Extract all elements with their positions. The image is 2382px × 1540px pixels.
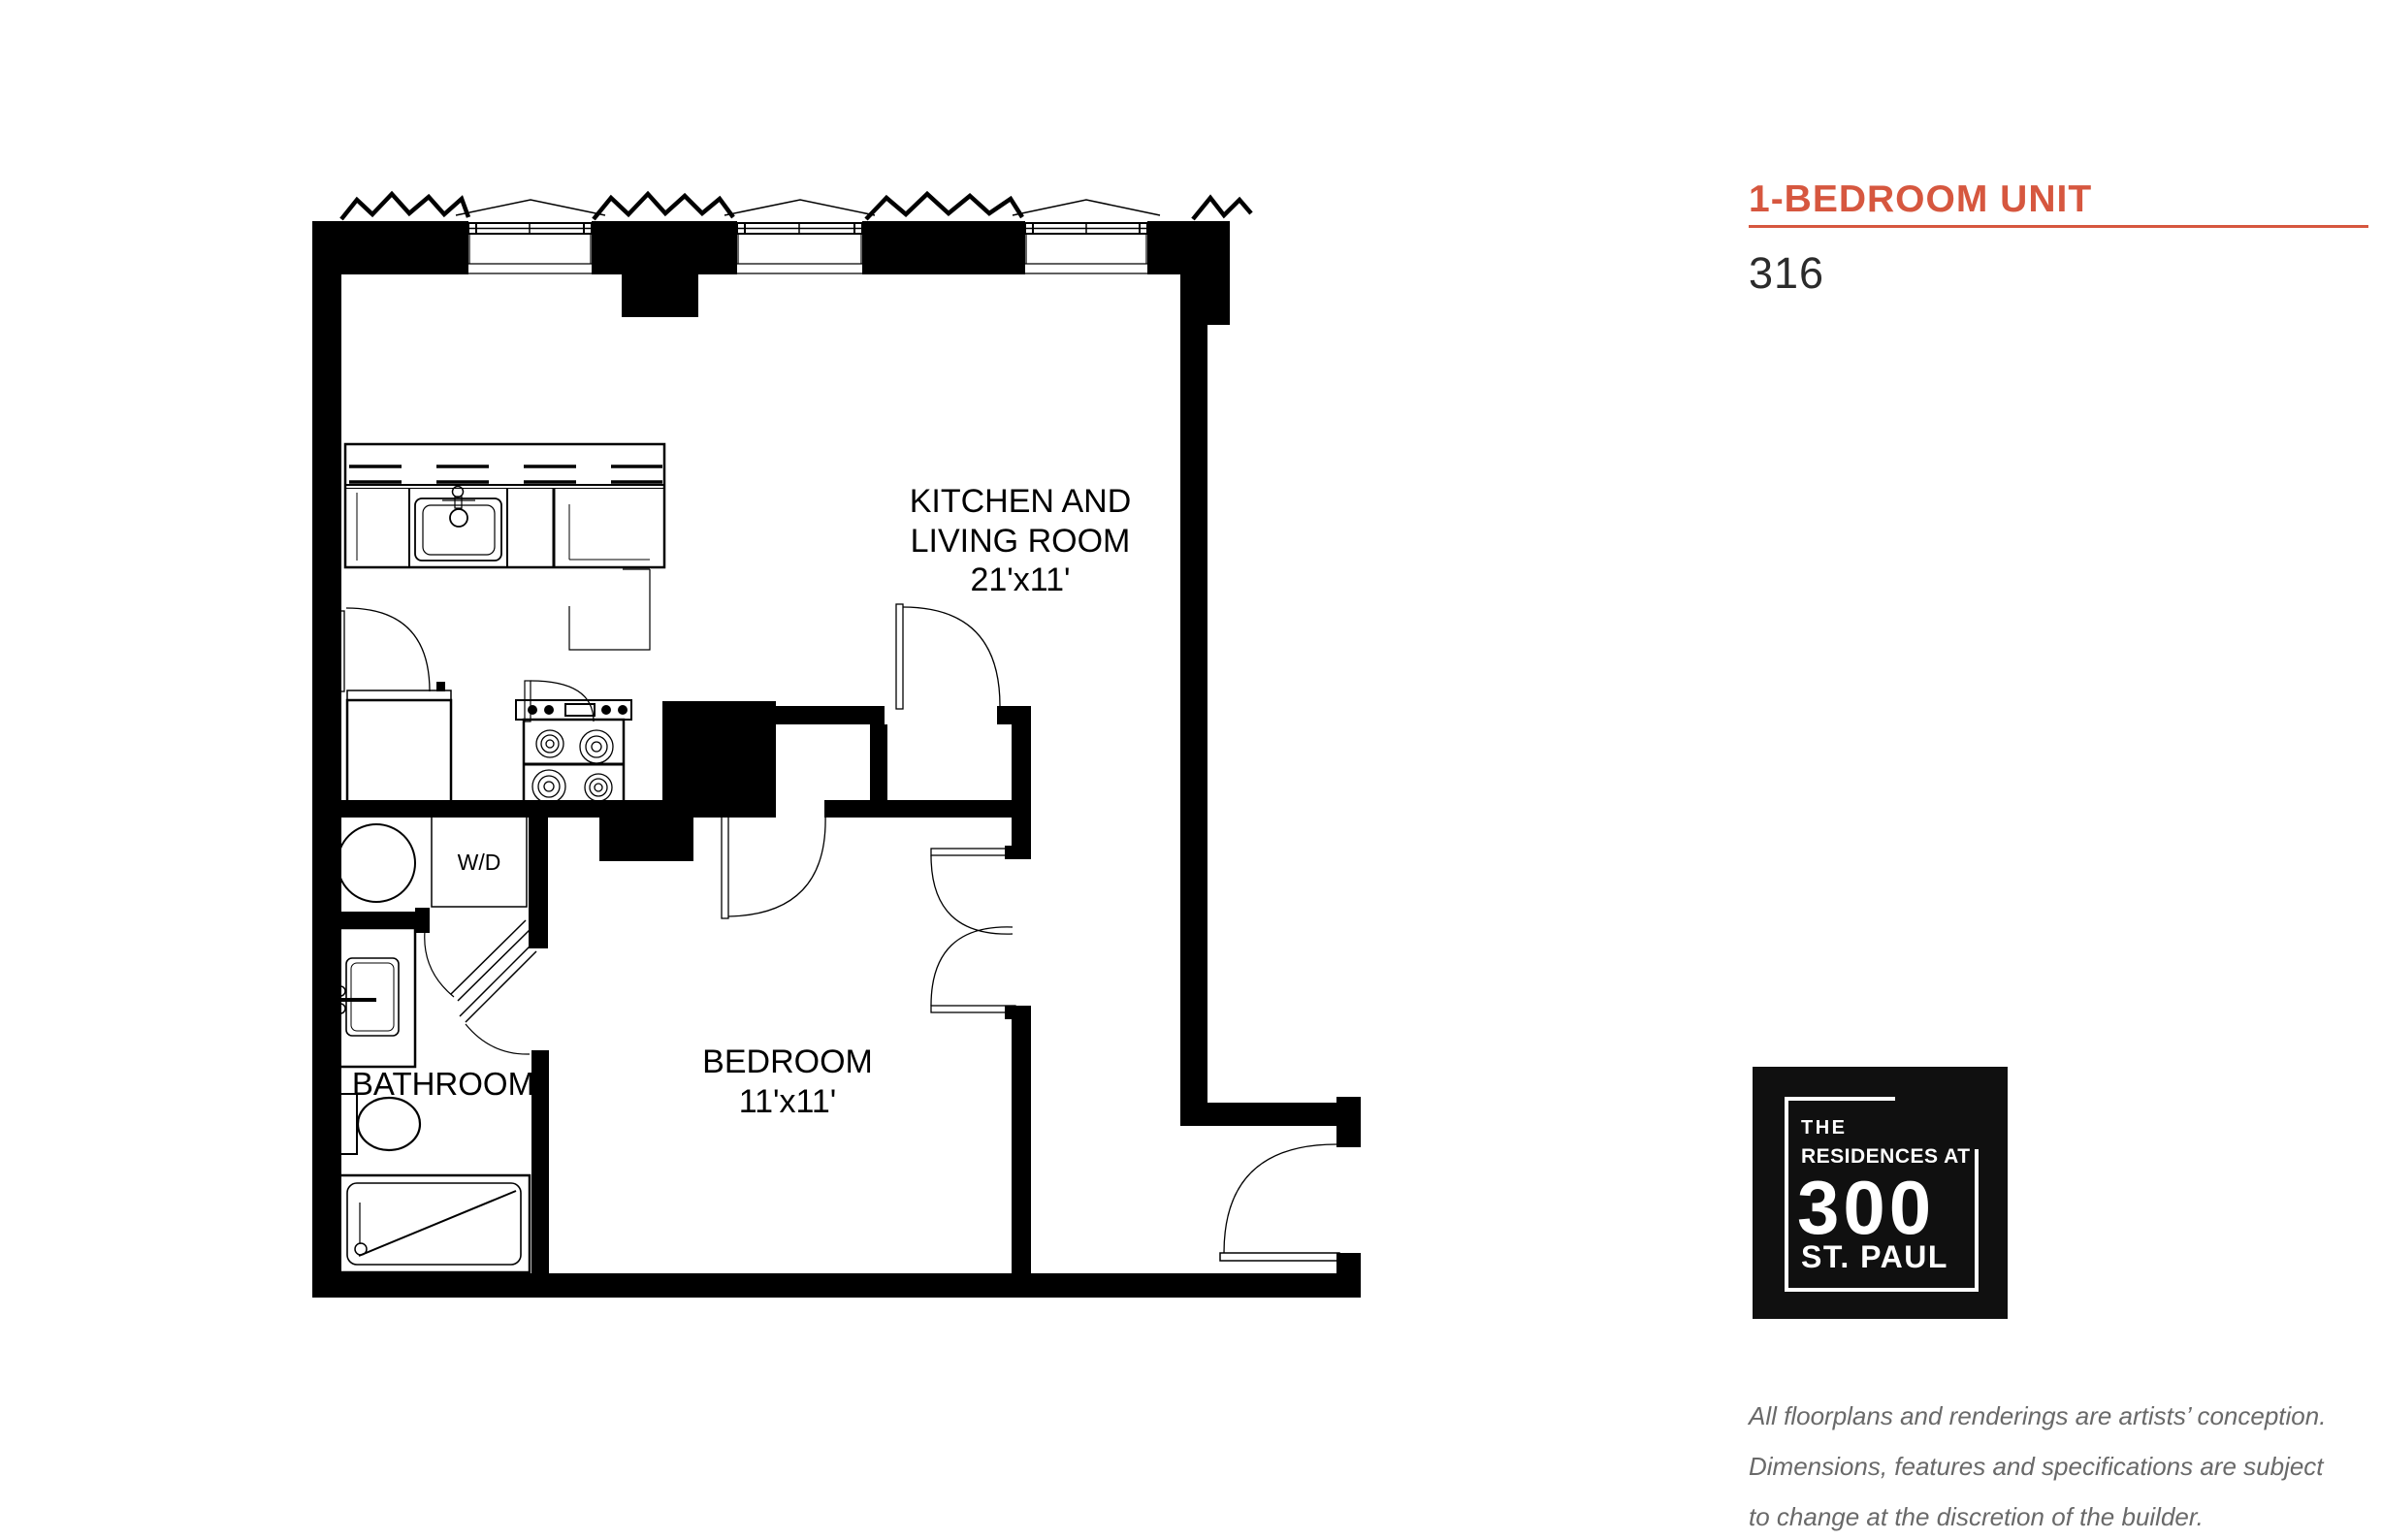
kitchen-door-icon <box>338 608 430 691</box>
logo-line-the: THE <box>1801 1117 1848 1139</box>
wall-kitchen-south-right <box>824 800 1031 818</box>
wall-right <box>1180 274 1207 1126</box>
bedroom-door-icon <box>722 815 825 918</box>
zigzag-1 <box>341 194 468 219</box>
exterior-break-lines <box>341 194 1251 219</box>
wall-hall-upper <box>1012 706 1031 853</box>
window-3-icon <box>1025 223 1147 273</box>
logo-frame-top <box>1785 1097 1895 1101</box>
entry-jamb-top <box>1336 1097 1361 1147</box>
kitchen <box>345 444 664 813</box>
wall-left <box>312 221 341 1298</box>
bedroom-closet-doors-icon <box>931 849 1015 1012</box>
shower-icon <box>338 1175 530 1272</box>
bay-peak-1 <box>456 200 605 215</box>
logo-frame-bottom <box>1785 1288 1979 1292</box>
column <box>622 262 698 317</box>
zigzag-4 <box>1193 198 1251 219</box>
toilet-icon <box>335 1094 420 1154</box>
logo-frame-left <box>1785 1097 1788 1292</box>
closet-door-jamb-1 <box>1005 846 1031 859</box>
title-underline <box>1749 225 2368 228</box>
bay-peak-2 <box>724 200 875 215</box>
bay-peak-3 <box>1013 200 1160 215</box>
zigzag-2 <box>594 194 733 219</box>
window-2-icon <box>737 223 862 273</box>
wall-hall-lower <box>1012 1009 1031 1278</box>
page: KITCHEN AND LIVING ROOM 21'x11' BEDROOM … <box>0 0 2382 1540</box>
kitchen-living-dimensions: 21'x11' <box>970 561 1070 598</box>
wall-entry-jut <box>1180 1103 1361 1126</box>
unit-number: 316 <box>1749 248 1824 299</box>
wall-mass-a <box>662 701 776 818</box>
bedroom-dimensions: 11'x11' <box>739 1083 837 1120</box>
wall-closet-north-left <box>776 706 885 724</box>
wall-closet-west <box>870 724 887 800</box>
window-1-icon <box>468 223 592 273</box>
bedroom-label: BEDROOM <box>702 1043 873 1080</box>
disclaimer-text: All floorplans and renderings are artist… <box>1749 1391 2369 1540</box>
page-title: 1-BEDROOM UNIT <box>1749 178 2092 221</box>
wall-mass-b <box>599 818 693 861</box>
zigzag-3 <box>866 194 1022 219</box>
logo-frame-right <box>1975 1149 1979 1292</box>
bathroom-label: BATHROOM <box>352 1066 534 1102</box>
closet-door-icon <box>896 604 1000 709</box>
burners <box>532 730 613 803</box>
kitchen-counter <box>345 444 664 567</box>
stove-icon <box>516 700 631 813</box>
kitchen-living-label-line2: LIVING ROOM <box>911 523 1131 560</box>
disclaimer-line-3: to change at the discretion of the build… <box>1749 1492 2369 1540</box>
bathroom-doors-icon <box>425 920 536 1054</box>
wall-bottom <box>312 1273 1361 1298</box>
water-heater-icon <box>338 824 415 902</box>
refrigerator-icon <box>347 682 451 813</box>
kitchen-living-label-line1: KITCHEN AND <box>910 483 1132 520</box>
walls <box>312 221 1361 1298</box>
vanity-icon <box>335 928 415 1067</box>
brand-logo: THE RESIDENCES AT 300 ST. PAUL <box>1753 1067 2008 1319</box>
kitchen-sink-icon <box>415 487 501 561</box>
wall-top-pier-4 <box>1147 221 1230 274</box>
washer-dryer-label: W/D <box>458 850 501 875</box>
wall-bath-north <box>312 912 415 929</box>
floorplan-drawing: KITCHEN AND LIVING ROOM 21'x11' BEDROOM … <box>0 0 2382 1540</box>
wall-top-pier-3 <box>862 221 1025 274</box>
entry-door-icon <box>1220 1144 1339 1261</box>
bath-door-jamb <box>415 908 430 933</box>
disclaimer-line-1: All floorplans and renderings are artist… <box>1749 1391 2369 1441</box>
wall-top-pier-1 <box>341 221 468 274</box>
disclaimer-line-2: Dimensions, features and specifications … <box>1749 1441 2369 1492</box>
windows <box>468 223 1147 273</box>
logo-line-stpaul: ST. PAUL <box>1801 1239 1948 1275</box>
counter-return-lines <box>569 569 650 650</box>
